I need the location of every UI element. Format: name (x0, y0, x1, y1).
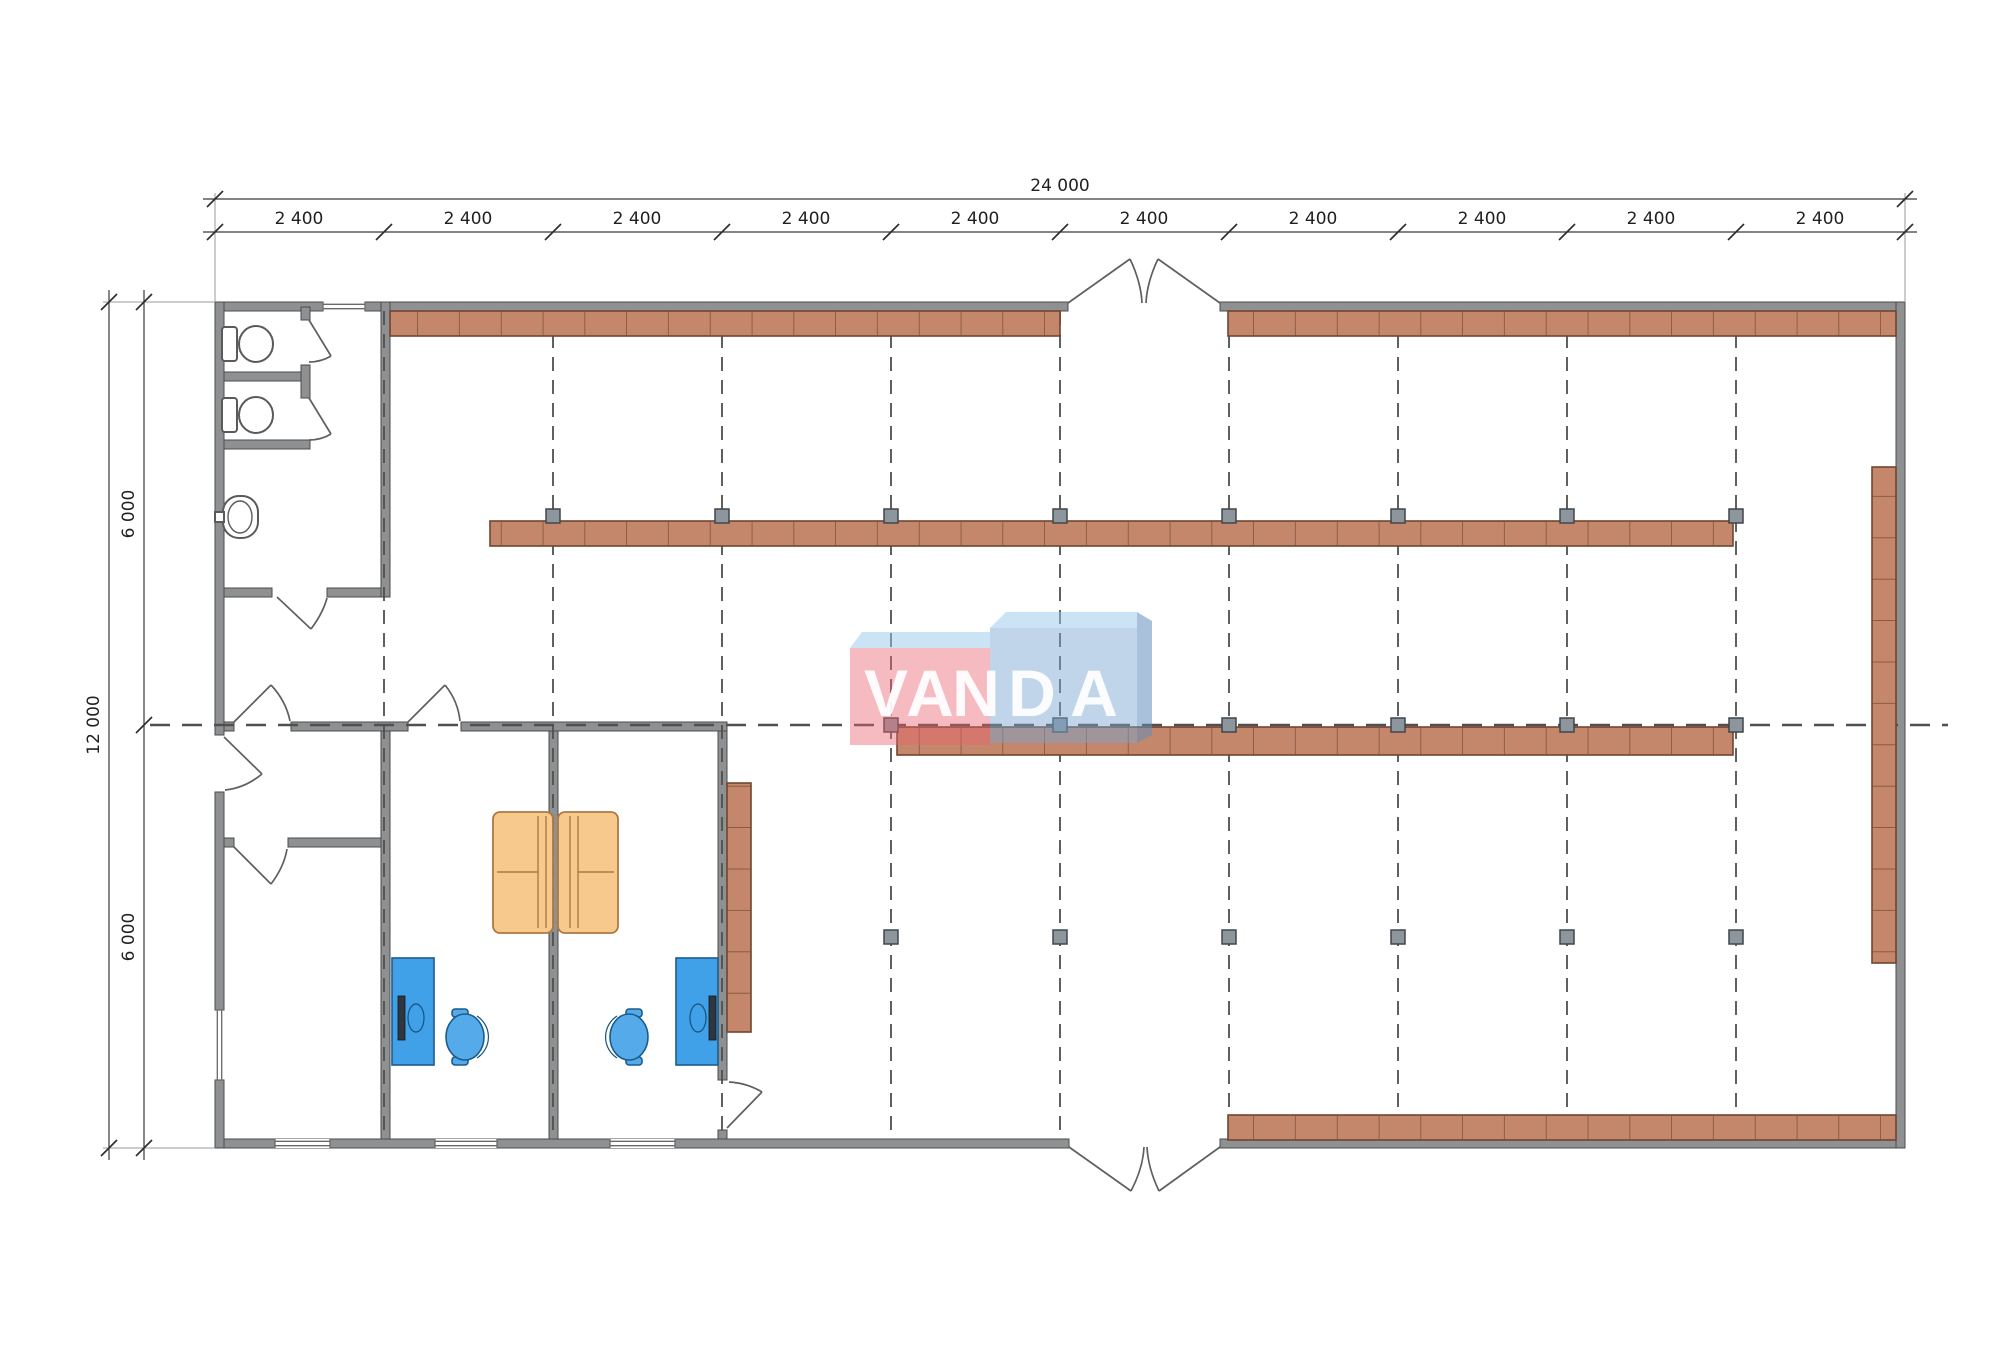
office-door (234, 685, 290, 722)
shelf-unit-middle-upper (490, 521, 1733, 546)
column-marker (1729, 930, 1743, 944)
wc-stall-door (309, 320, 331, 362)
column-marker (884, 930, 898, 944)
dimension-label: 2 400 (1796, 209, 1845, 229)
exterior-wall-top (1220, 302, 1905, 311)
toilet-fixture (222, 397, 273, 433)
column-marker (1560, 509, 1574, 523)
office-chair-2 (606, 1009, 648, 1065)
floor-plan-canvas: V A N D A 24 000 2 400 (0, 0, 2000, 1358)
dimension-label: 2 400 (1458, 209, 1507, 229)
dimension-label: 2 400 (613, 209, 662, 229)
column-marker (884, 509, 898, 523)
logo-letter: A (1070, 656, 1118, 730)
shelf-unit-bottom (1228, 1115, 1896, 1140)
wc-block-bottom-wall (327, 588, 381, 597)
column-marker (1560, 930, 1574, 944)
dimension-label: 2 400 (444, 209, 493, 229)
wc-stall-divider (224, 372, 310, 381)
column-marker (715, 509, 729, 523)
dimension-label: 6 000 (119, 913, 139, 962)
column-marker (1222, 509, 1236, 523)
wc-stall-front-wall (301, 365, 310, 398)
logo-letter: V (864, 656, 908, 730)
column-marker (546, 509, 560, 523)
office-door (408, 685, 460, 722)
dimension-label: 2 400 (1289, 209, 1338, 229)
side-entrance-door (224, 737, 262, 790)
logo-letter: D (1008, 656, 1056, 730)
office-chair-1 (446, 1009, 488, 1065)
column-marker (1729, 718, 1743, 732)
exterior-wall-left (215, 792, 224, 1010)
shelf-unit-top-right (1228, 311, 1896, 336)
dimension-left-total: 12 000 (84, 290, 117, 1160)
office-exit-door (727, 1082, 762, 1128)
logo-blue-side-face (1137, 612, 1152, 743)
wc-block-bottom-wall (224, 588, 272, 597)
column-marker (1729, 509, 1743, 523)
dimension-left-segments: 6 000 6 000 (119, 290, 152, 1160)
office-right-wall (718, 1130, 727, 1139)
dimension-label: 2 400 (782, 209, 831, 229)
window (323, 302, 365, 311)
column-marker (1560, 718, 1574, 732)
exterior-wall-left (215, 1080, 224, 1148)
logo-blue-top-face (990, 612, 1137, 628)
wc-door (277, 597, 327, 629)
office-top-wall (291, 722, 408, 731)
office-top-wall (461, 722, 727, 731)
column-marker (1053, 930, 1067, 944)
dimension-label: 2 400 (1120, 209, 1169, 229)
dimension-label: 6 000 (119, 490, 139, 539)
wc-stall-door (309, 398, 331, 440)
window (610, 1139, 675, 1148)
desk-1 (392, 958, 434, 1065)
window (215, 1010, 224, 1080)
vestibule-wall (224, 838, 234, 847)
window (435, 1139, 497, 1148)
column-marker (1391, 718, 1405, 732)
monitor-icon (398, 996, 405, 1040)
column-marker (1222, 930, 1236, 944)
logo-red-top-face (850, 632, 990, 648)
column-marker (1053, 509, 1067, 523)
shelf-unit-top-left (390, 311, 1060, 336)
sanitary-fixtures (215, 326, 273, 538)
entrance-door-top (1068, 259, 1220, 303)
logo-letter: A (906, 656, 954, 730)
shelf-unit-office-wall (727, 783, 751, 1032)
dimension-top-segments: 2 400 2 400 2 400 2 400 2 400 2 400 2 40… (203, 209, 1917, 240)
dimension-label: 2 400 (275, 209, 324, 229)
dimension-label: 2 400 (951, 209, 1000, 229)
wc-stall-divider (224, 440, 310, 449)
office-top-wall (224, 722, 234, 731)
wc-block-right-wall (381, 302, 390, 597)
column-marker (1222, 718, 1236, 732)
shelf-unit-right-wall (1872, 467, 1896, 963)
vestibule-door (234, 847, 287, 884)
dimension-label: 12 000 (84, 695, 104, 754)
toilet-fixture (222, 326, 273, 362)
vanda-logo: V A N D A (850, 612, 1152, 745)
entrance-door-bottom (1069, 1147, 1220, 1191)
wc-stall-front-wall (301, 307, 310, 320)
column-marker (1391, 509, 1405, 523)
dimension-label: 24 000 (1030, 176, 1089, 196)
dimension-top-total: 24 000 (203, 176, 1917, 207)
vestibule-wall (288, 838, 381, 847)
desk-2 (676, 958, 718, 1065)
logo-letter: N (952, 656, 1000, 730)
dimension-label: 2 400 (1627, 209, 1676, 229)
exterior-wall-top (365, 302, 1068, 311)
monitor-icon (709, 996, 716, 1040)
window (275, 1139, 330, 1148)
column-marker (1391, 930, 1405, 944)
office-partition-wall (381, 731, 390, 1139)
